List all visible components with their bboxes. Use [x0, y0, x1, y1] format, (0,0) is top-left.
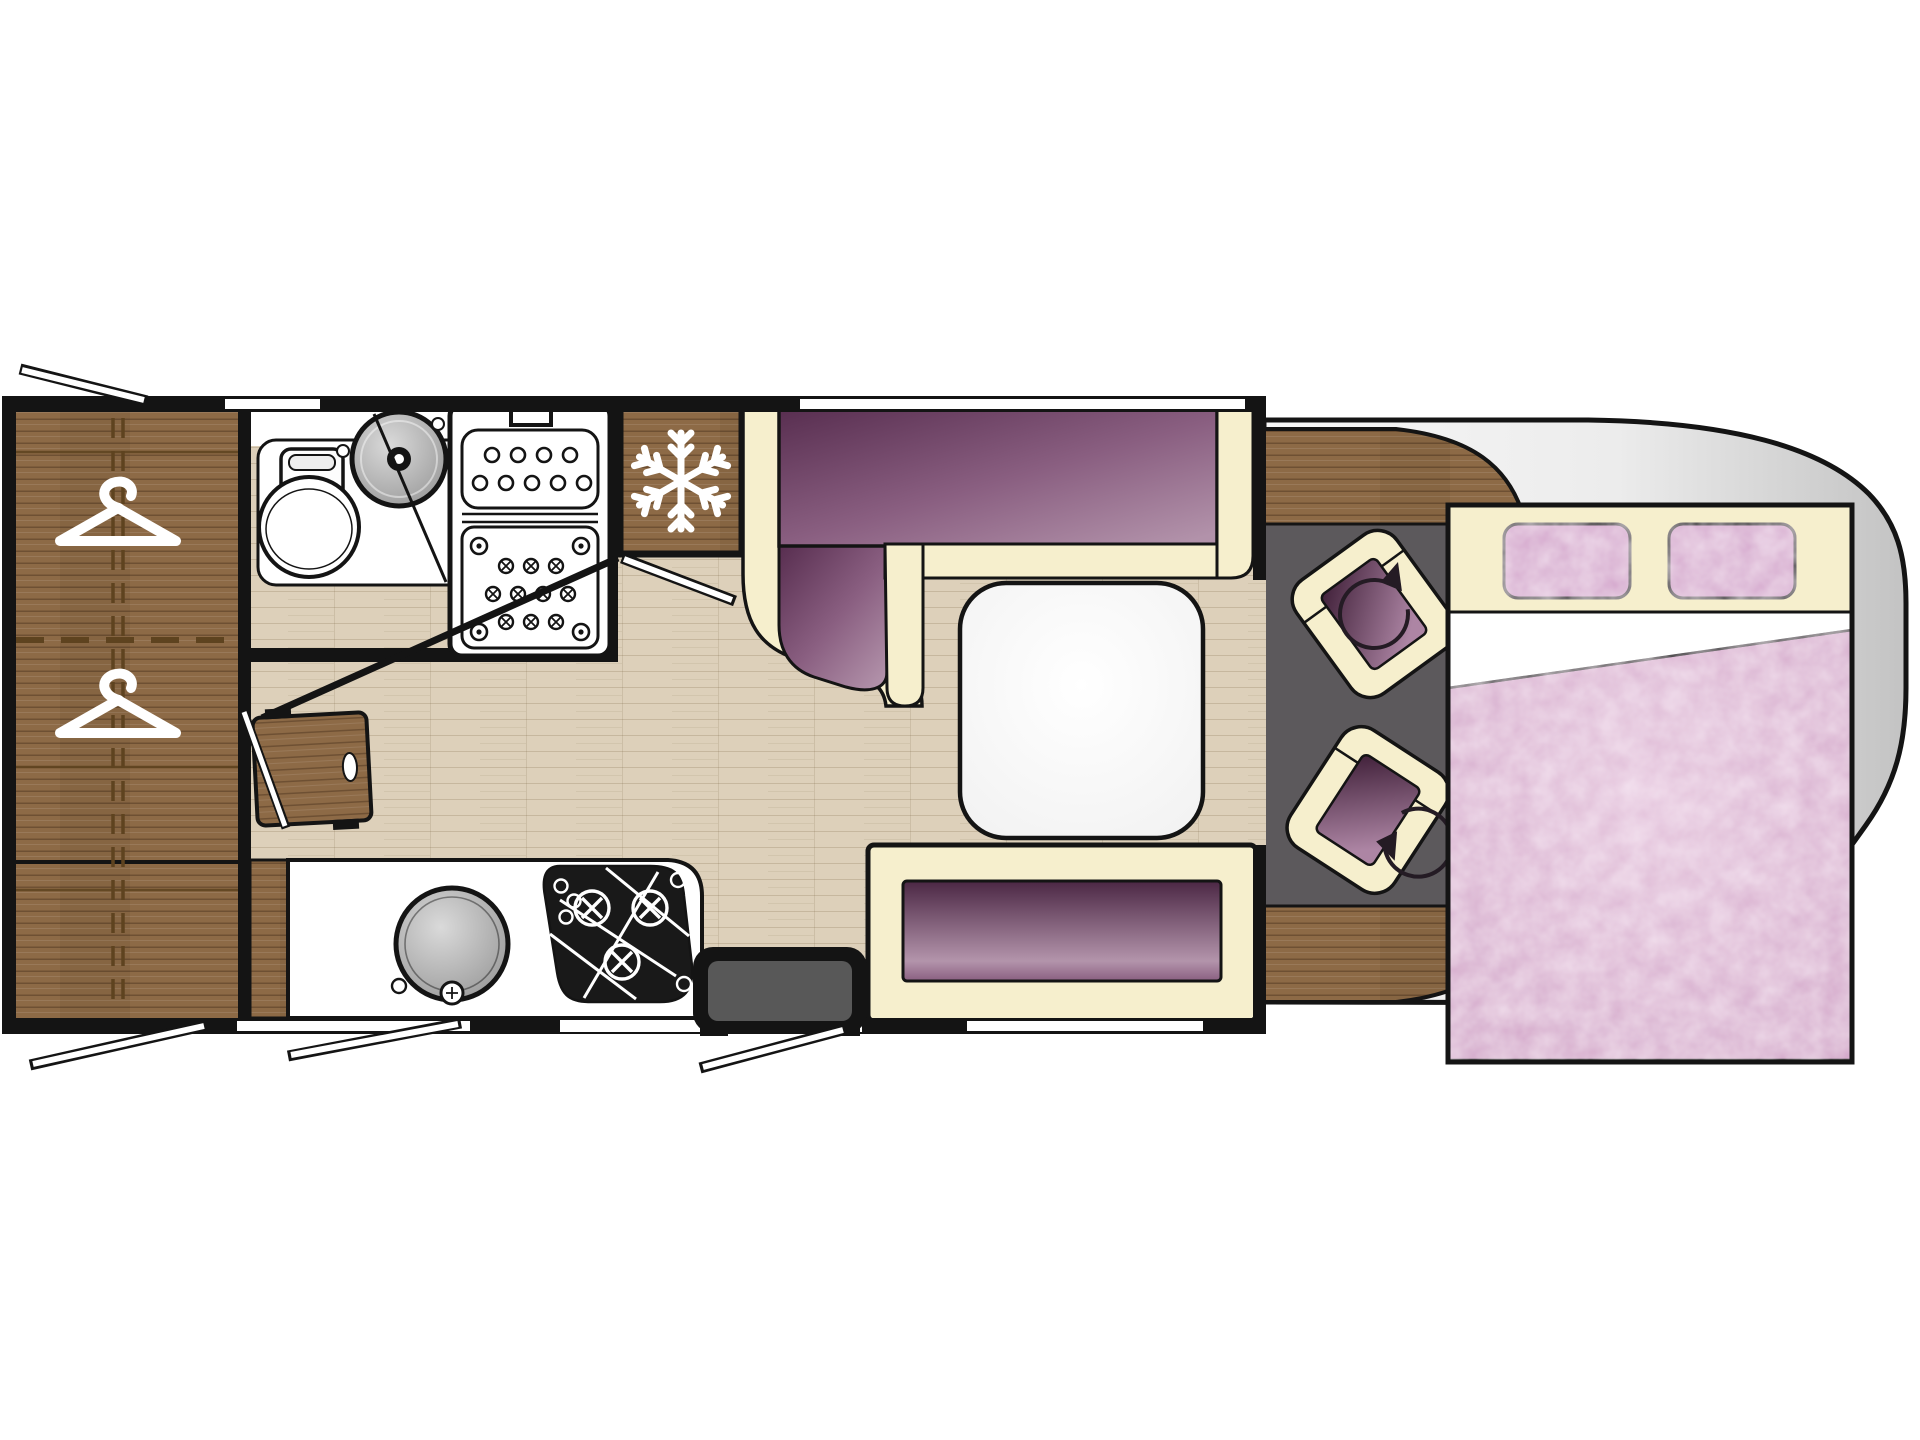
- dinette-table: [960, 583, 1203, 838]
- bench-cushion: [903, 881, 1221, 981]
- wardrobe: [16, 412, 238, 1018]
- cab-bulkhead-top: [1253, 404, 1266, 580]
- motorhome-floorplan: [0, 0, 1920, 1440]
- window: [967, 1021, 1203, 1031]
- cab-bulkhead-bottom: [1253, 845, 1266, 1021]
- kitchen-side-panel: [250, 860, 288, 1018]
- entry-step: [693, 947, 867, 1036]
- window: [225, 399, 320, 409]
- sofa-back-left-arm: [779, 545, 887, 690]
- drop-down-bed: [1448, 505, 1852, 1062]
- sofa-seat-right: [1217, 406, 1253, 578]
- shower-tray: [450, 400, 610, 656]
- fridge: [620, 408, 742, 554]
- kitchen: [250, 860, 702, 1018]
- hob: [544, 866, 692, 1002]
- side-bench: [868, 845, 1256, 1021]
- floorplan-canvas: [0, 0, 1920, 1440]
- duvet: [1448, 630, 1852, 1060]
- pillow: [1669, 524, 1795, 598]
- washbasin: [352, 412, 446, 506]
- sofa-back-main: [779, 406, 1217, 546]
- stored-table: [252, 704, 372, 834]
- pillow: [1504, 524, 1630, 598]
- sofa-seat-bottom: [885, 544, 1217, 578]
- sofa-seat-left: [885, 544, 923, 706]
- window: [800, 399, 1245, 409]
